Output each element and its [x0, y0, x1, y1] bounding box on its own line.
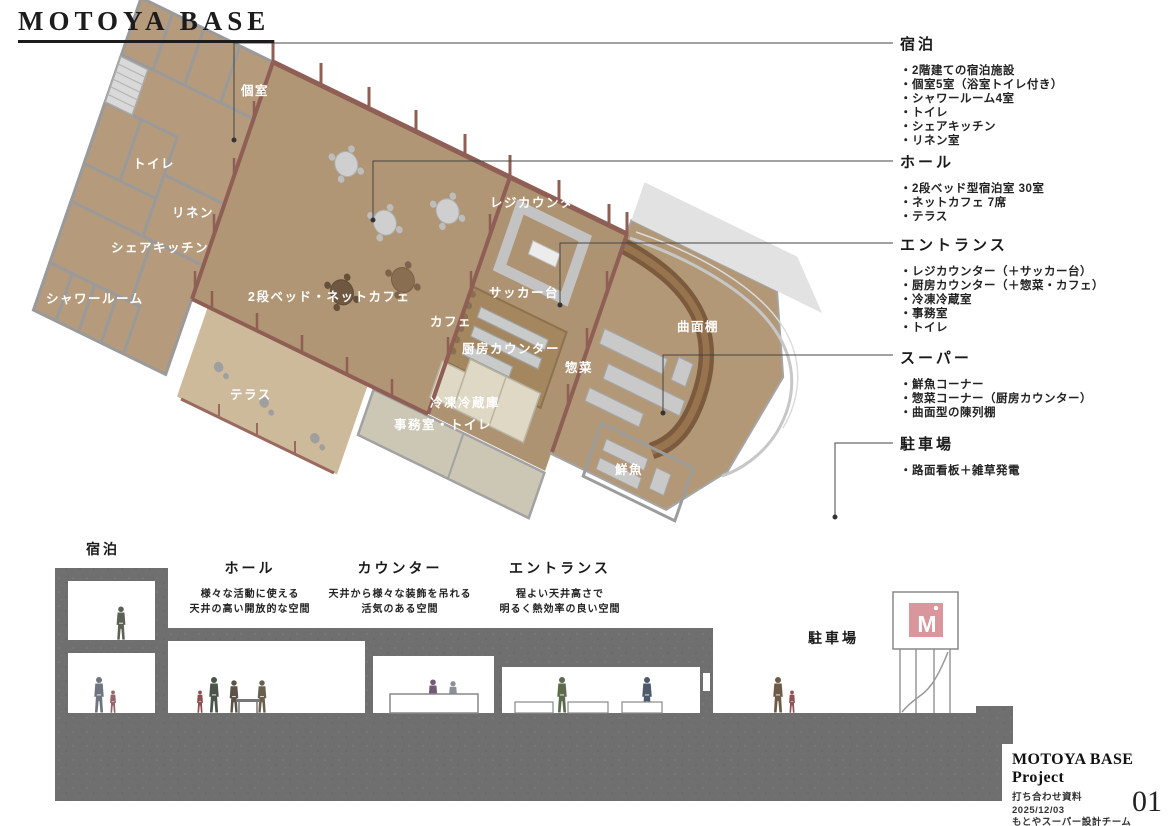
annotation-item: ・シャワールーム4室	[900, 92, 1171, 106]
annotation-heading: ホール	[900, 151, 1171, 172]
section-desc-line: 程よい天井高さで	[500, 587, 621, 602]
section-desc-line: 明るく熱効率の良い空間	[500, 602, 621, 617]
annotation-item: ・冷凍冷蔵室	[900, 293, 1171, 307]
title-block: MOTOYA BASE Project 打ち合わせ資料 2025/12/03 も…	[1002, 744, 1171, 822]
plan-label-linen: リネン	[172, 206, 214, 220]
section-desc-line: 活気のある空間	[329, 602, 472, 617]
plan-label-shower-room: シャワールーム	[46, 292, 144, 306]
annotation-item: ・2階建ての宿泊施設	[900, 64, 1171, 78]
annotation-item: ・鮮魚コーナー	[900, 378, 1171, 392]
annotation-hall: ホール ・2段ベッド型宿泊室 30室 ・ネットカフェ 7席 ・テラス	[900, 151, 1171, 224]
annotation-item: ・テラス	[900, 210, 1171, 224]
ground	[55, 713, 1013, 801]
parking-sign: M	[893, 592, 958, 713]
annotation-item: ・曲面型の陳列棚	[900, 406, 1171, 420]
annotation-item: ・リネン室	[900, 134, 1171, 148]
annotation-heading: スーパー	[900, 347, 1171, 368]
plan-label-private-room: 個室	[240, 83, 269, 98]
annotation-item: ・レジカウンター（＋サッカー台）	[900, 265, 1171, 279]
plan-label-bunk-net-cafe: 2段ベッド・ネットカフェ	[248, 289, 410, 304]
section-label-hall: ホール 様々な活動に使える 天井の高い開放的な空間	[190, 558, 311, 617]
logo-m-icon: M	[917, 611, 936, 637]
plan-label-kitchen-counter: 厨房カウンター	[462, 341, 560, 356]
presentation-board: 個室 トイレ リネン シェアキッチン シャワールーム 2段ベッド・ネットカフェ …	[0, 0, 1171, 826]
annotation-item: ・路面看板＋雑草発電	[900, 464, 1171, 478]
plan-label-freezer: 冷凍冷蔵庫	[430, 395, 500, 410]
section-heading: 駐車場	[808, 628, 859, 648]
annotation-parking: 駐車場 ・路面看板＋雑草発電	[900, 433, 1171, 478]
section-desc-line: 様々な活動に使える	[190, 587, 311, 602]
section-desc-line: 天井の高い開放的な空間	[190, 602, 311, 617]
plan-label-share-kitchen: シェアキッチン	[111, 241, 209, 255]
section-heading: 宿泊	[86, 539, 120, 559]
plan-label-toilet: トイレ	[133, 157, 175, 171]
annotation-heading: 駐車場	[900, 433, 1171, 454]
annotation-heading: 宿泊	[900, 33, 1171, 54]
annotation-item: ・厨房カウンター（＋惣菜・カフェ）	[900, 279, 1171, 293]
annotation-entrance: エントランス ・レジカウンター（＋サッカー台） ・厨房カウンター（＋惣菜・カフェ…	[900, 234, 1171, 335]
annotation-item: ・シェアキッチン	[900, 120, 1171, 134]
section-label-parking: 駐車場	[808, 628, 859, 648]
annotation-item: ・2段ベッド型宿泊室 30室	[900, 182, 1171, 196]
section-heading: カウンター	[329, 558, 472, 578]
section-heading: エントランス	[500, 558, 621, 578]
section-label-entrance: エントランス 程よい天井高さで 明るく熱効率の良い空間	[500, 558, 621, 617]
page-title: MOTOYA BASE	[18, 6, 274, 43]
annotation-item: ・ネットカフェ 7席	[900, 196, 1171, 210]
annotation-lodging: 宿泊 ・2階建ての宿泊施設 ・個室5室（浴室トイレ付き） ・シャワールーム4室 …	[900, 33, 1171, 148]
plan-label-terrace: テラス	[230, 388, 272, 402]
annotation-item: ・トイレ	[900, 106, 1171, 120]
section-lodging-tower	[55, 568, 168, 713]
project-title: MOTOYA BASE Project	[1012, 751, 1163, 787]
plan-label-bagging-table: サッカー台	[489, 285, 559, 300]
annotation-item: ・事務室	[900, 307, 1171, 321]
annotation-heading: エントランス	[900, 234, 1171, 255]
annotation-item: ・惣菜コーナー（厨房カウンター）	[900, 392, 1171, 406]
section-furniture	[236, 694, 662, 713]
annotation-item: ・個室5室（浴室トイレ付き）	[900, 78, 1171, 92]
section-label-counter: カウンター 天井から様々な装飾を吊れる 活気のある空間	[329, 558, 472, 617]
plan-label-cafe: カフェ	[430, 315, 472, 329]
section-label-lodging: 宿泊	[86, 539, 120, 559]
annotation-item: ・トイレ	[900, 321, 1171, 335]
plan-label-fresh-fish: 鮮魚	[615, 462, 643, 477]
annotation-supermarket: スーパー ・鮮魚コーナー ・惣菜コーナー（厨房カウンター） ・曲面型の陳列棚	[900, 347, 1171, 420]
plan-label-deli: 惣菜	[565, 360, 593, 375]
section-desc-line: 天井から様々な装飾を吊れる	[329, 587, 472, 602]
page-number: 01	[1132, 785, 1162, 819]
plan-label-curved-shelf: 曲面棚	[677, 319, 719, 334]
plan-label-office-toilet: 事務室・トイレ	[394, 417, 492, 432]
section-heading: ホール	[190, 558, 311, 578]
plan-label-register-counter: レジカウンター	[490, 195, 588, 210]
